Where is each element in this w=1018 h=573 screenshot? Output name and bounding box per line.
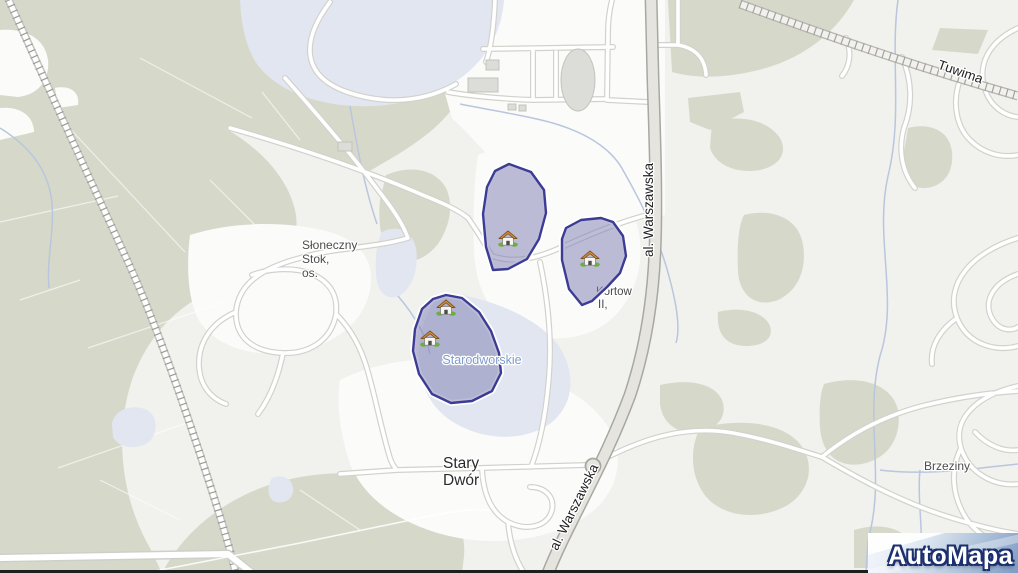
- automapa-logo: AutoMapa: [888, 542, 1013, 571]
- map-viewport[interactable]: Kortow II, Słoneczny Stok, os. Stary Dwó…: [0, 0, 1018, 573]
- label-lake-starodworskie: Starodworskie: [442, 353, 521, 367]
- label-brzeziny: Brzeziny: [924, 459, 970, 473]
- label-stary-dwor-line1: Stary: [443, 455, 479, 472]
- label-sloneczny-stok-line1: Słoneczny: [302, 238, 357, 252]
- label-kortowo-line2: II,: [598, 299, 608, 311]
- label-sloneczny-stok-line3: os.: [302, 266, 318, 280]
- label-stary-dwor-line2: Dwór: [443, 472, 479, 489]
- stadium-oval: [561, 49, 595, 111]
- map-canvas[interactable]: Kortow II, Słoneczny Stok, os. Stary Dwó…: [0, 0, 1018, 573]
- label-warszawska-north: al. Warszawska: [641, 163, 656, 258]
- automapa-watermark: AutoMapa: [868, 533, 1018, 573]
- label-sloneczny-stok-line2: Stok,: [302, 252, 329, 266]
